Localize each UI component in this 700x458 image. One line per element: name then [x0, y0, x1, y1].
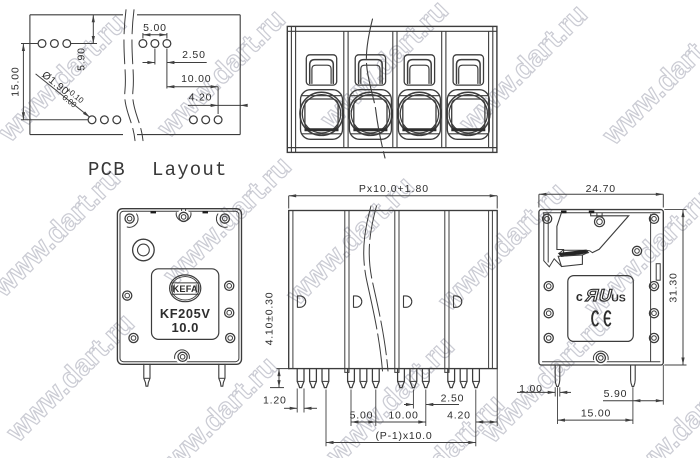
svg-text:10.00: 10.00 [388, 409, 418, 421]
svg-text:KEFA: KEFA [173, 284, 198, 294]
svg-text:c: c [576, 290, 583, 304]
svg-text:4.20: 4.20 [189, 92, 213, 104]
svg-text:10.00: 10.00 [181, 73, 211, 85]
svg-text:10.0: 10.0 [172, 320, 199, 335]
svg-text:2.50: 2.50 [441, 392, 465, 404]
svg-text:1.20: 1.20 [263, 394, 287, 406]
svg-text:4.10±0.30: 4.10±0.30 [264, 292, 276, 346]
svg-text:(P-1)x10.0: (P-1)x10.0 [375, 430, 432, 442]
svg-text:KF205V: KF205V [160, 306, 211, 321]
svg-text:Layout: Layout [152, 159, 228, 181]
svg-text:24.70: 24.70 [586, 183, 616, 195]
svg-text:2.50: 2.50 [182, 49, 206, 61]
svg-text:US: US [611, 293, 626, 305]
svg-text:5.90: 5.90 [604, 388, 628, 400]
svg-text:PCB: PCB [88, 159, 126, 181]
svg-text:4.20: 4.20 [447, 409, 471, 421]
svg-text:15.00: 15.00 [581, 407, 611, 419]
svg-text:5.00: 5.00 [350, 409, 374, 421]
svg-text:5.00: 5.00 [143, 22, 167, 34]
svg-text:Px10.0+1.80: Px10.0+1.80 [359, 183, 429, 195]
svg-text:1.00: 1.00 [519, 383, 543, 395]
svg-text:15.00: 15.00 [10, 66, 22, 96]
svg-text:31.30: 31.30 [668, 272, 680, 302]
svg-text:5.90: 5.90 [76, 47, 88, 71]
